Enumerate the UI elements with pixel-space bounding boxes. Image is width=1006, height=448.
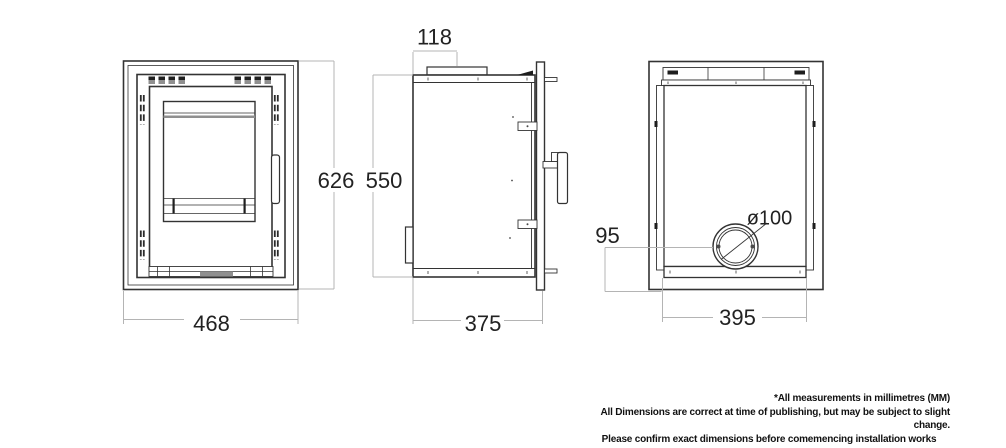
rear-rail-right bbox=[806, 86, 814, 271]
vent-slot bbox=[265, 81, 272, 84]
front-view bbox=[124, 61, 299, 290]
footnote-line-2: All Dimensions are correct at time of pu… bbox=[588, 406, 950, 433]
dim-depth: 375 bbox=[465, 311, 502, 336]
flange-pin-top bbox=[545, 78, 558, 82]
rear-bottom-bracket bbox=[406, 227, 414, 263]
dim-flue-diameter: ø100 bbox=[747, 208, 793, 230]
dim-flue-offset: 118 bbox=[417, 25, 452, 50]
rail-clip bbox=[813, 223, 816, 229]
flue-bolt bbox=[751, 245, 755, 249]
bracket-bolt bbox=[527, 125, 529, 127]
flue-collar-side bbox=[427, 67, 487, 75]
rear-top-bar bbox=[663, 68, 809, 81]
vent-slot bbox=[149, 77, 156, 81]
bottom-strip-grille bbox=[200, 272, 233, 277]
footnote-line-1: *All measurements in millimetres (MM) bbox=[588, 392, 950, 406]
vent-slot bbox=[245, 77, 252, 81]
vent-slot bbox=[159, 77, 166, 81]
vent-slot bbox=[169, 77, 176, 81]
side-body bbox=[413, 75, 535, 277]
technical-drawing: 468 626 550 118 375 ø100 95 bbox=[0, 0, 1006, 448]
footnote: *All measurements in millimetres (MM) Al… bbox=[588, 392, 950, 446]
dim-flue-centre-offset: 95 bbox=[595, 223, 619, 248]
flue-bolt bbox=[717, 245, 721, 249]
side-door-handle bbox=[543, 153, 568, 204]
door-handle bbox=[272, 155, 280, 204]
vent-slot bbox=[179, 77, 186, 81]
vent-slot bbox=[245, 81, 252, 84]
vent-slot bbox=[265, 77, 272, 81]
vent-slot bbox=[235, 81, 242, 84]
footnote-line-3: Please confirm exact dimensions before c… bbox=[588, 433, 950, 447]
vent-slot bbox=[169, 81, 176, 84]
rear-rail-left bbox=[657, 86, 665, 271]
door-frame bbox=[164, 102, 256, 222]
front-flange-edge bbox=[537, 62, 545, 290]
rear-clip-tab bbox=[668, 71, 679, 75]
stove-dimensions-diagram: 468 626 550 118 375 ø100 95 bbox=[0, 0, 1006, 448]
vent-slot bbox=[149, 81, 156, 84]
vent-slot bbox=[255, 81, 262, 84]
dim-rear-width: 395 bbox=[719, 305, 756, 330]
front-bottom-strip bbox=[149, 267, 273, 277]
dim-body-height: 550 bbox=[366, 168, 403, 193]
dim-front-width: 468 bbox=[193, 311, 230, 336]
vent-slot bbox=[255, 77, 262, 81]
side-view bbox=[406, 62, 568, 290]
side-top-wedge bbox=[517, 71, 533, 76]
rail-clip bbox=[655, 223, 658, 229]
vent-slot bbox=[159, 81, 166, 84]
door-hinge-mark bbox=[173, 199, 175, 214]
bracket-bolt bbox=[527, 223, 529, 225]
flange-pin-bottom bbox=[545, 269, 558, 273]
door bbox=[164, 102, 256, 222]
rear-view bbox=[649, 62, 823, 290]
rail-clip bbox=[655, 121, 658, 127]
dim-front-height: 626 bbox=[318, 168, 355, 193]
rail-clip bbox=[813, 121, 816, 127]
vent-slot bbox=[235, 77, 242, 81]
handle-arm bbox=[543, 162, 558, 169]
vent-slot bbox=[179, 81, 186, 84]
handle-bar bbox=[558, 153, 568, 204]
door-hinge-mark bbox=[244, 199, 246, 214]
rear-clip-tab bbox=[795, 71, 806, 75]
door-top-band bbox=[164, 116, 256, 119]
